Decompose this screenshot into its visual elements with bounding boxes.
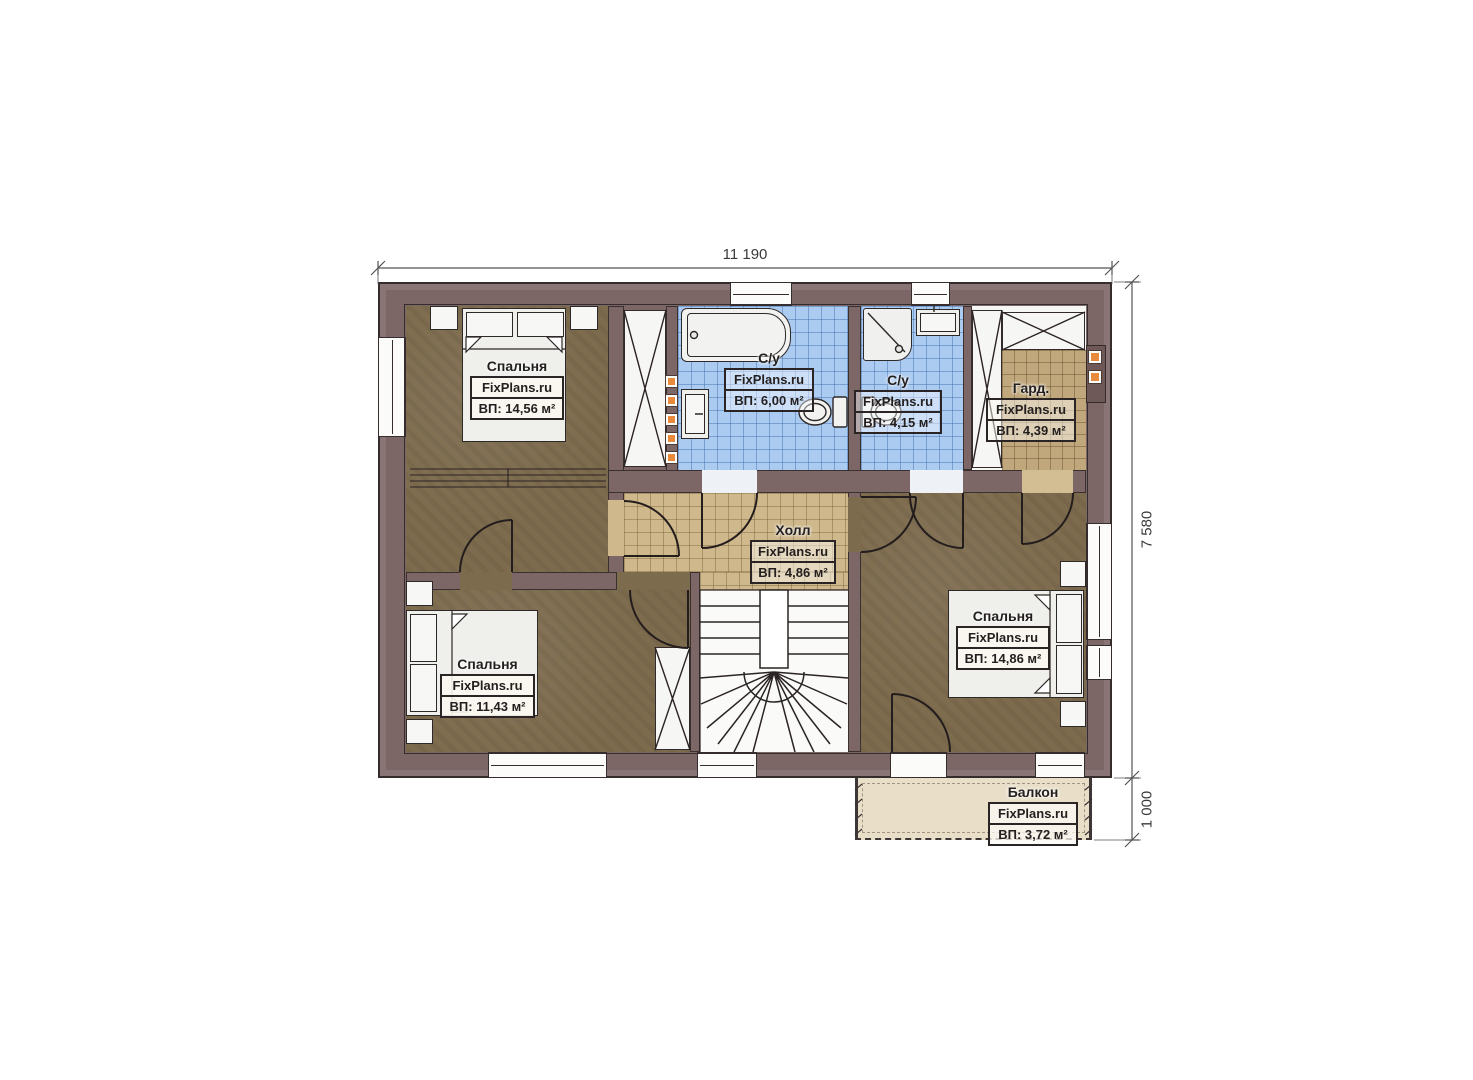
- dimension-top-width: 11 190: [695, 246, 795, 263]
- doorway-hall-bedroom-br: [848, 497, 861, 552]
- wall-h-main: [608, 470, 1086, 493]
- radiator-icon: [666, 433, 677, 444]
- room-name: Спальня: [956, 608, 1050, 624]
- pillow: [1056, 645, 1082, 694]
- shower-cabin: [863, 308, 912, 361]
- room-area: ВП: 4,15 м²: [856, 411, 940, 432]
- room-name: Спальня: [470, 358, 564, 374]
- pillow: [466, 312, 513, 337]
- pillow: [1056, 594, 1082, 643]
- brand-watermark: FixPlans.ru: [988, 400, 1074, 419]
- window-bottom-bedroom-bl: [488, 752, 607, 778]
- doorway-bedroom-tl-small: [460, 572, 512, 590]
- label-bedroom-bottom-right: Спальня FixPlans.ru ВП: 14,86 м²: [956, 608, 1050, 670]
- radiator-icon: [1089, 351, 1101, 363]
- label-wardrobe: Гард. FixPlans.ru ВП: 4,39 м²: [986, 380, 1076, 442]
- radiator-icon: [1089, 371, 1101, 383]
- label-balcony: Балкон FixPlans.ru ВП: 3,72 м²: [988, 784, 1078, 846]
- radiator-icon: [666, 452, 677, 463]
- radiator-icon: [666, 376, 677, 387]
- stairwell: [700, 590, 848, 752]
- dimension-balcony-depth: 1 000: [1139, 780, 1156, 840]
- brand-watermark: FixPlans.ru: [990, 804, 1076, 823]
- wall-v-stairs-left: [690, 572, 700, 752]
- room-area: ВП: 3,72 м²: [990, 823, 1076, 844]
- doorway-hall-bedroom-tl: [608, 500, 624, 556]
- nightstand: [430, 306, 458, 330]
- window-right-bedroom-br: [1086, 523, 1112, 640]
- closet-wardrobe-band: [1002, 312, 1085, 350]
- window-left-bedroom-tl: [378, 337, 406, 437]
- window-top-bathroom-second: [911, 282, 950, 306]
- closet-top-left: [624, 310, 666, 467]
- room-name: Холл: [750, 522, 836, 538]
- room-area: ВП: 4,39 м²: [988, 419, 1074, 440]
- doorway-bedroom-bl: [617, 572, 690, 590]
- radiator-icon: [666, 395, 677, 406]
- brand-watermark: FixPlans.ru: [856, 392, 940, 411]
- nightstand: [570, 306, 598, 330]
- window-bottom-bedroom-br: [1035, 752, 1085, 778]
- brand-watermark: FixPlans.ru: [726, 370, 812, 389]
- window-top-bathroom-main: [730, 282, 792, 306]
- nightstand: [1060, 561, 1086, 587]
- room-name: С/у: [724, 350, 814, 366]
- room-area: ВП: 6,00 м²: [726, 389, 812, 410]
- floor-plan-page: Спальня FixPlans.ru ВП: 14,56 м² С/у Fix…: [0, 0, 1473, 1080]
- room-area: ВП: 11,43 м²: [442, 695, 533, 716]
- doorway-bathroom-second: [910, 470, 963, 493]
- radiator-icon: [666, 414, 677, 425]
- brand-watermark: FixPlans.ru: [752, 542, 834, 561]
- dimension-right-height: 7 580: [1139, 500, 1156, 560]
- nightstand: [1060, 701, 1086, 727]
- label-bedroom-bottom-left: Спальня FixPlans.ru ВП: 11,43 м²: [440, 656, 535, 718]
- doorway-bathroom-main: [702, 470, 757, 493]
- room-name: С/у: [854, 372, 942, 388]
- room-name: Гард.: [986, 380, 1076, 396]
- pillow: [410, 664, 437, 712]
- window-bottom-stairs: [697, 752, 757, 778]
- label-bathroom-second: С/у FixPlans.ru ВП: 4,15 м²: [854, 372, 942, 434]
- room-area: ВП: 4,86 м²: [752, 561, 834, 582]
- brand-watermark: FixPlans.ru: [472, 378, 562, 397]
- closet-near-stairs: [655, 647, 690, 750]
- label-bedroom-top-left: Спальня FixPlans.ru ВП: 14,56 м²: [470, 358, 564, 420]
- nightstand: [406, 719, 433, 744]
- room-area: ВП: 14,86 м²: [958, 647, 1048, 668]
- room-name: Балкон: [988, 784, 1078, 800]
- pillow: [517, 312, 564, 337]
- pillow: [410, 614, 437, 662]
- room-area: ВП: 14,56 м²: [472, 397, 562, 418]
- room-name: Спальня: [440, 656, 535, 672]
- brand-watermark: FixPlans.ru: [442, 676, 533, 695]
- sink-second-bath-basin: [920, 313, 956, 332]
- label-hall: Холл FixPlans.ru ВП: 4,86 м²: [750, 522, 836, 584]
- brand-watermark: FixPlans.ru: [958, 628, 1048, 647]
- doorway-wardrobe: [1022, 470, 1073, 493]
- nightstand: [406, 581, 433, 606]
- wall-v-bath2-wardrobe: [963, 306, 972, 470]
- balcony-door-threshold: [890, 752, 947, 778]
- sink-main-bath-basin: [685, 394, 705, 434]
- window-right-bedroom-br-2: [1086, 645, 1112, 680]
- label-bathroom-main: С/у FixPlans.ru ВП: 6,00 м²: [724, 350, 814, 412]
